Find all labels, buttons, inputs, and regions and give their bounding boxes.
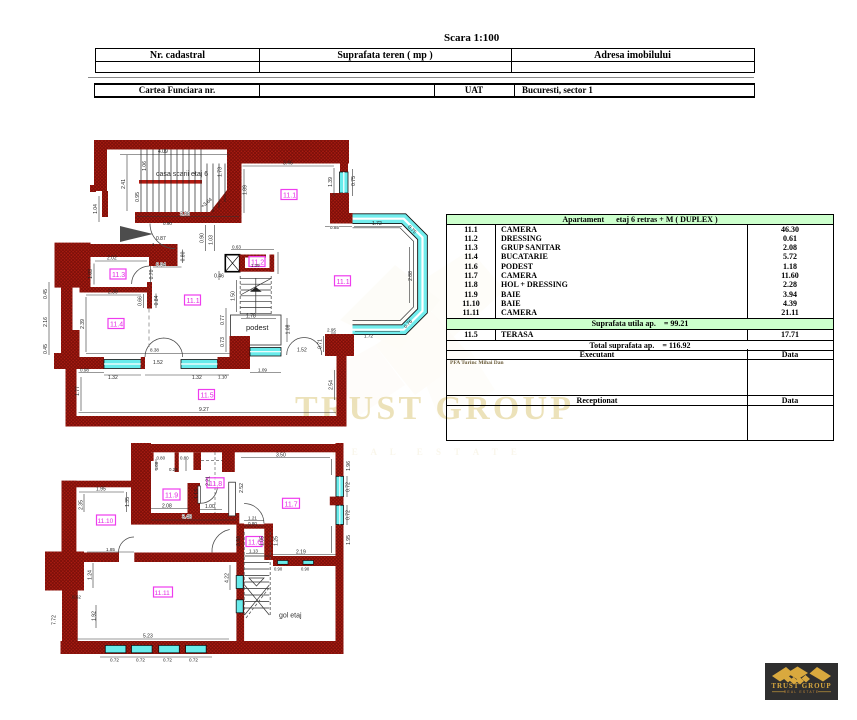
svg-text:1.13: 1.13	[194, 489, 200, 499]
svg-text:1.10: 1.10	[218, 375, 227, 380]
svg-text:0.72: 0.72	[163, 658, 172, 663]
svg-text:2.08: 2.08	[162, 504, 172, 510]
svg-text:0.90: 0.90	[163, 221, 172, 226]
svg-text:1.78: 1.78	[246, 314, 256, 320]
svg-text:11.1: 11.1	[283, 193, 296, 200]
svg-text:2.95: 2.95	[327, 328, 336, 333]
svg-text:2.54: 2.54	[329, 380, 335, 390]
svg-text:0.71: 0.71	[318, 339, 324, 349]
svg-text:2.88: 2.88	[408, 271, 414, 281]
svg-text:3.40: 3.40	[182, 515, 192, 521]
svg-text:1.72: 1.72	[364, 334, 373, 339]
svg-text:4.22: 4.22	[224, 573, 230, 583]
svg-text:11.7: 11.7	[285, 501, 298, 508]
svg-text:0.87: 0.87	[156, 236, 166, 242]
svg-text:1.04: 1.04	[93, 204, 99, 214]
svg-text:1.92: 1.92	[91, 611, 97, 621]
svg-text:0.52: 0.52	[72, 595, 81, 600]
svg-text:5.23: 5.23	[143, 634, 153, 640]
svg-text:casa scarii etaj 6: casa scarii etaj 6	[156, 171, 208, 178]
svg-text:2.16: 2.16	[43, 317, 49, 327]
svg-text:0.46: 0.46	[214, 274, 224, 280]
svg-text:3.46: 3.46	[283, 161, 293, 167]
svg-text:1.39: 1.39	[328, 177, 334, 187]
svg-text:0.90: 0.90	[301, 567, 310, 572]
svg-text:1.08: 1.08	[154, 461, 159, 470]
svg-text:0.72: 0.72	[346, 482, 352, 492]
svg-text:2.35: 2.35	[79, 500, 85, 510]
svg-text:0.72: 0.72	[346, 510, 352, 520]
svg-text:11.5: 11.5	[201, 393, 214, 400]
svg-text:1.89: 1.89	[243, 185, 249, 195]
svg-text:2.52: 2.52	[239, 483, 245, 493]
svg-text:2.39: 2.39	[108, 290, 118, 296]
svg-text:0.72: 0.72	[136, 658, 145, 663]
svg-text:1.24: 1.24	[88, 570, 94, 580]
svg-text:9.27: 9.27	[199, 407, 209, 413]
svg-text:11.4: 11.4	[110, 322, 123, 329]
svg-text:0.70: 0.70	[149, 269, 155, 279]
svg-text:1.95: 1.95	[96, 487, 106, 493]
svg-text:1.03: 1.03	[88, 269, 94, 279]
svg-text:1.35: 1.35	[125, 497, 131, 507]
svg-text:0.80: 0.80	[157, 456, 166, 461]
svg-text:1.85: 1.85	[106, 547, 115, 552]
svg-text:1.77: 1.77	[75, 386, 81, 396]
svg-text:2.41: 2.41	[121, 179, 127, 189]
svg-text:TRUST GROUP: TRUST GROUP	[771, 682, 831, 690]
svg-text:0.72: 0.72	[110, 658, 119, 663]
svg-text:1.03: 1.03	[209, 235, 215, 245]
svg-text:1.73: 1.73	[218, 167, 224, 177]
svg-text:11.1: 11.1	[337, 279, 350, 286]
svg-text:0.98: 0.98	[80, 368, 89, 373]
svg-text:0.45: 0.45	[43, 344, 49, 354]
svg-text:1.96: 1.96	[346, 461, 352, 471]
svg-text:2.39: 2.39	[80, 319, 86, 329]
svg-text:1: 1	[152, 242, 155, 247]
svg-text:1.25: 1.25	[274, 536, 280, 546]
svg-text:0.90: 0.90	[200, 233, 206, 243]
svg-text:8.38: 8.38	[150, 348, 159, 353]
svg-text:11.3: 11.3	[112, 272, 125, 279]
svg-text:2.19: 2.19	[296, 550, 306, 556]
svg-text:11.9: 11.9	[165, 493, 178, 500]
svg-text:0.80: 0.80	[181, 251, 187, 261]
svg-text:0.90: 0.90	[236, 536, 242, 546]
svg-text:2.21: 2.21	[206, 476, 212, 486]
svg-text:0.95: 0.95	[135, 192, 141, 202]
svg-text:0.94: 0.94	[156, 263, 166, 269]
svg-text:1.50: 1.50	[231, 291, 237, 301]
svg-text:1.95: 1.95	[346, 535, 352, 545]
svg-text:11.10: 11.10	[98, 518, 114, 525]
svg-text:1.09: 1.09	[258, 368, 267, 373]
svg-text:0.45: 0.45	[43, 289, 49, 299]
svg-text:1.13: 1.13	[249, 549, 258, 554]
svg-text:1.08: 1.08	[286, 324, 292, 334]
svg-text:0.25: 0.25	[169, 467, 178, 472]
svg-text:1.39: 1.39	[251, 263, 260, 268]
svg-text:0.73: 0.73	[220, 337, 226, 347]
svg-text:1.06: 1.06	[142, 161, 148, 171]
svg-text:0.80: 0.80	[248, 521, 257, 526]
svg-text:1.72: 1.72	[372, 221, 382, 227]
svg-text:11.1: 11.1	[187, 298, 200, 305]
svg-text:2.02: 2.02	[107, 256, 117, 262]
svg-text:1.52: 1.52	[153, 360, 163, 366]
svg-text:0.85: 0.85	[330, 225, 339, 230]
svg-text:4.09: 4.09	[158, 149, 168, 155]
svg-text:podest: podest	[246, 323, 269, 332]
svg-text:0.84: 0.84	[154, 295, 160, 305]
svg-text:7.72: 7.72	[52, 615, 58, 625]
svg-text:3.50: 3.50	[276, 453, 286, 459]
svg-text:0.80: 0.80	[180, 456, 189, 461]
svg-text:0.66: 0.66	[138, 296, 144, 306]
svg-text:11.11: 11.11	[155, 590, 171, 597]
svg-text:gol etaj: gol etaj	[279, 613, 302, 620]
svg-text:REAL ESTATE: REAL ESTATE	[784, 690, 820, 694]
svg-text:1.05: 1.05	[260, 536, 266, 546]
svg-text:0.72: 0.72	[189, 658, 198, 663]
svg-text:1.32: 1.32	[192, 375, 202, 381]
svg-text:0.75: 0.75	[351, 176, 357, 186]
svg-text:1.21: 1.21	[248, 516, 257, 521]
svg-text:1.32: 1.32	[108, 375, 118, 381]
svg-text:0.63: 0.63	[232, 245, 241, 250]
svg-text:0.77: 0.77	[220, 315, 226, 325]
svg-text:1.52: 1.52	[297, 348, 307, 354]
svg-text:1.00: 1.00	[205, 504, 215, 510]
svg-text:0.90: 0.90	[274, 567, 283, 572]
svg-text:3.08: 3.08	[180, 212, 190, 218]
